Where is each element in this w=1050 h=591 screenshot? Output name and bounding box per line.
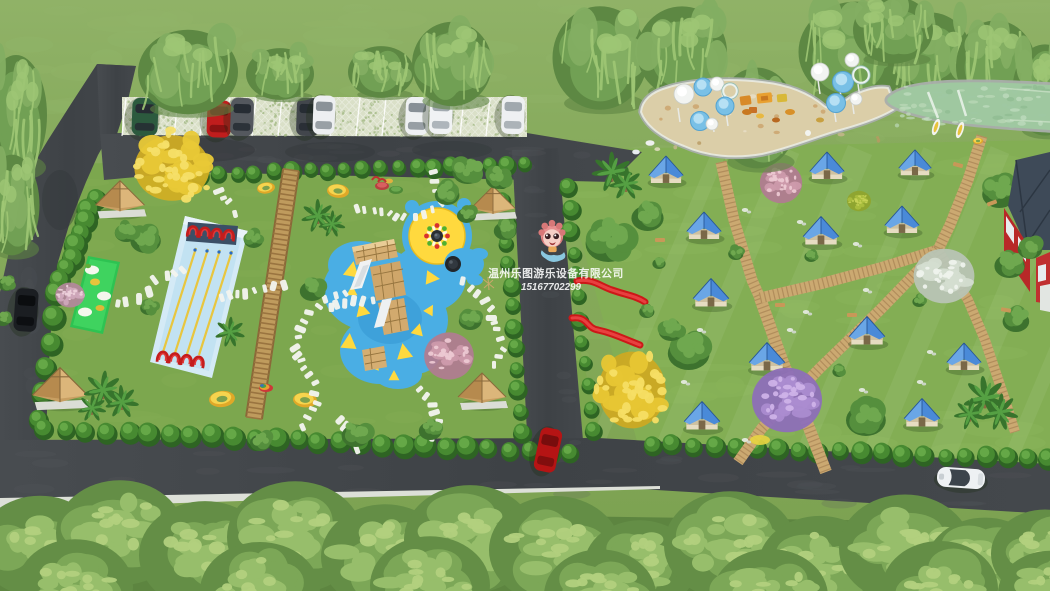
svg-text:温州乐图游乐设备有限公司: 温州乐图游乐设备有限公司 [488,266,624,280]
svg-text:15167702299: 15167702299 [521,282,581,293]
